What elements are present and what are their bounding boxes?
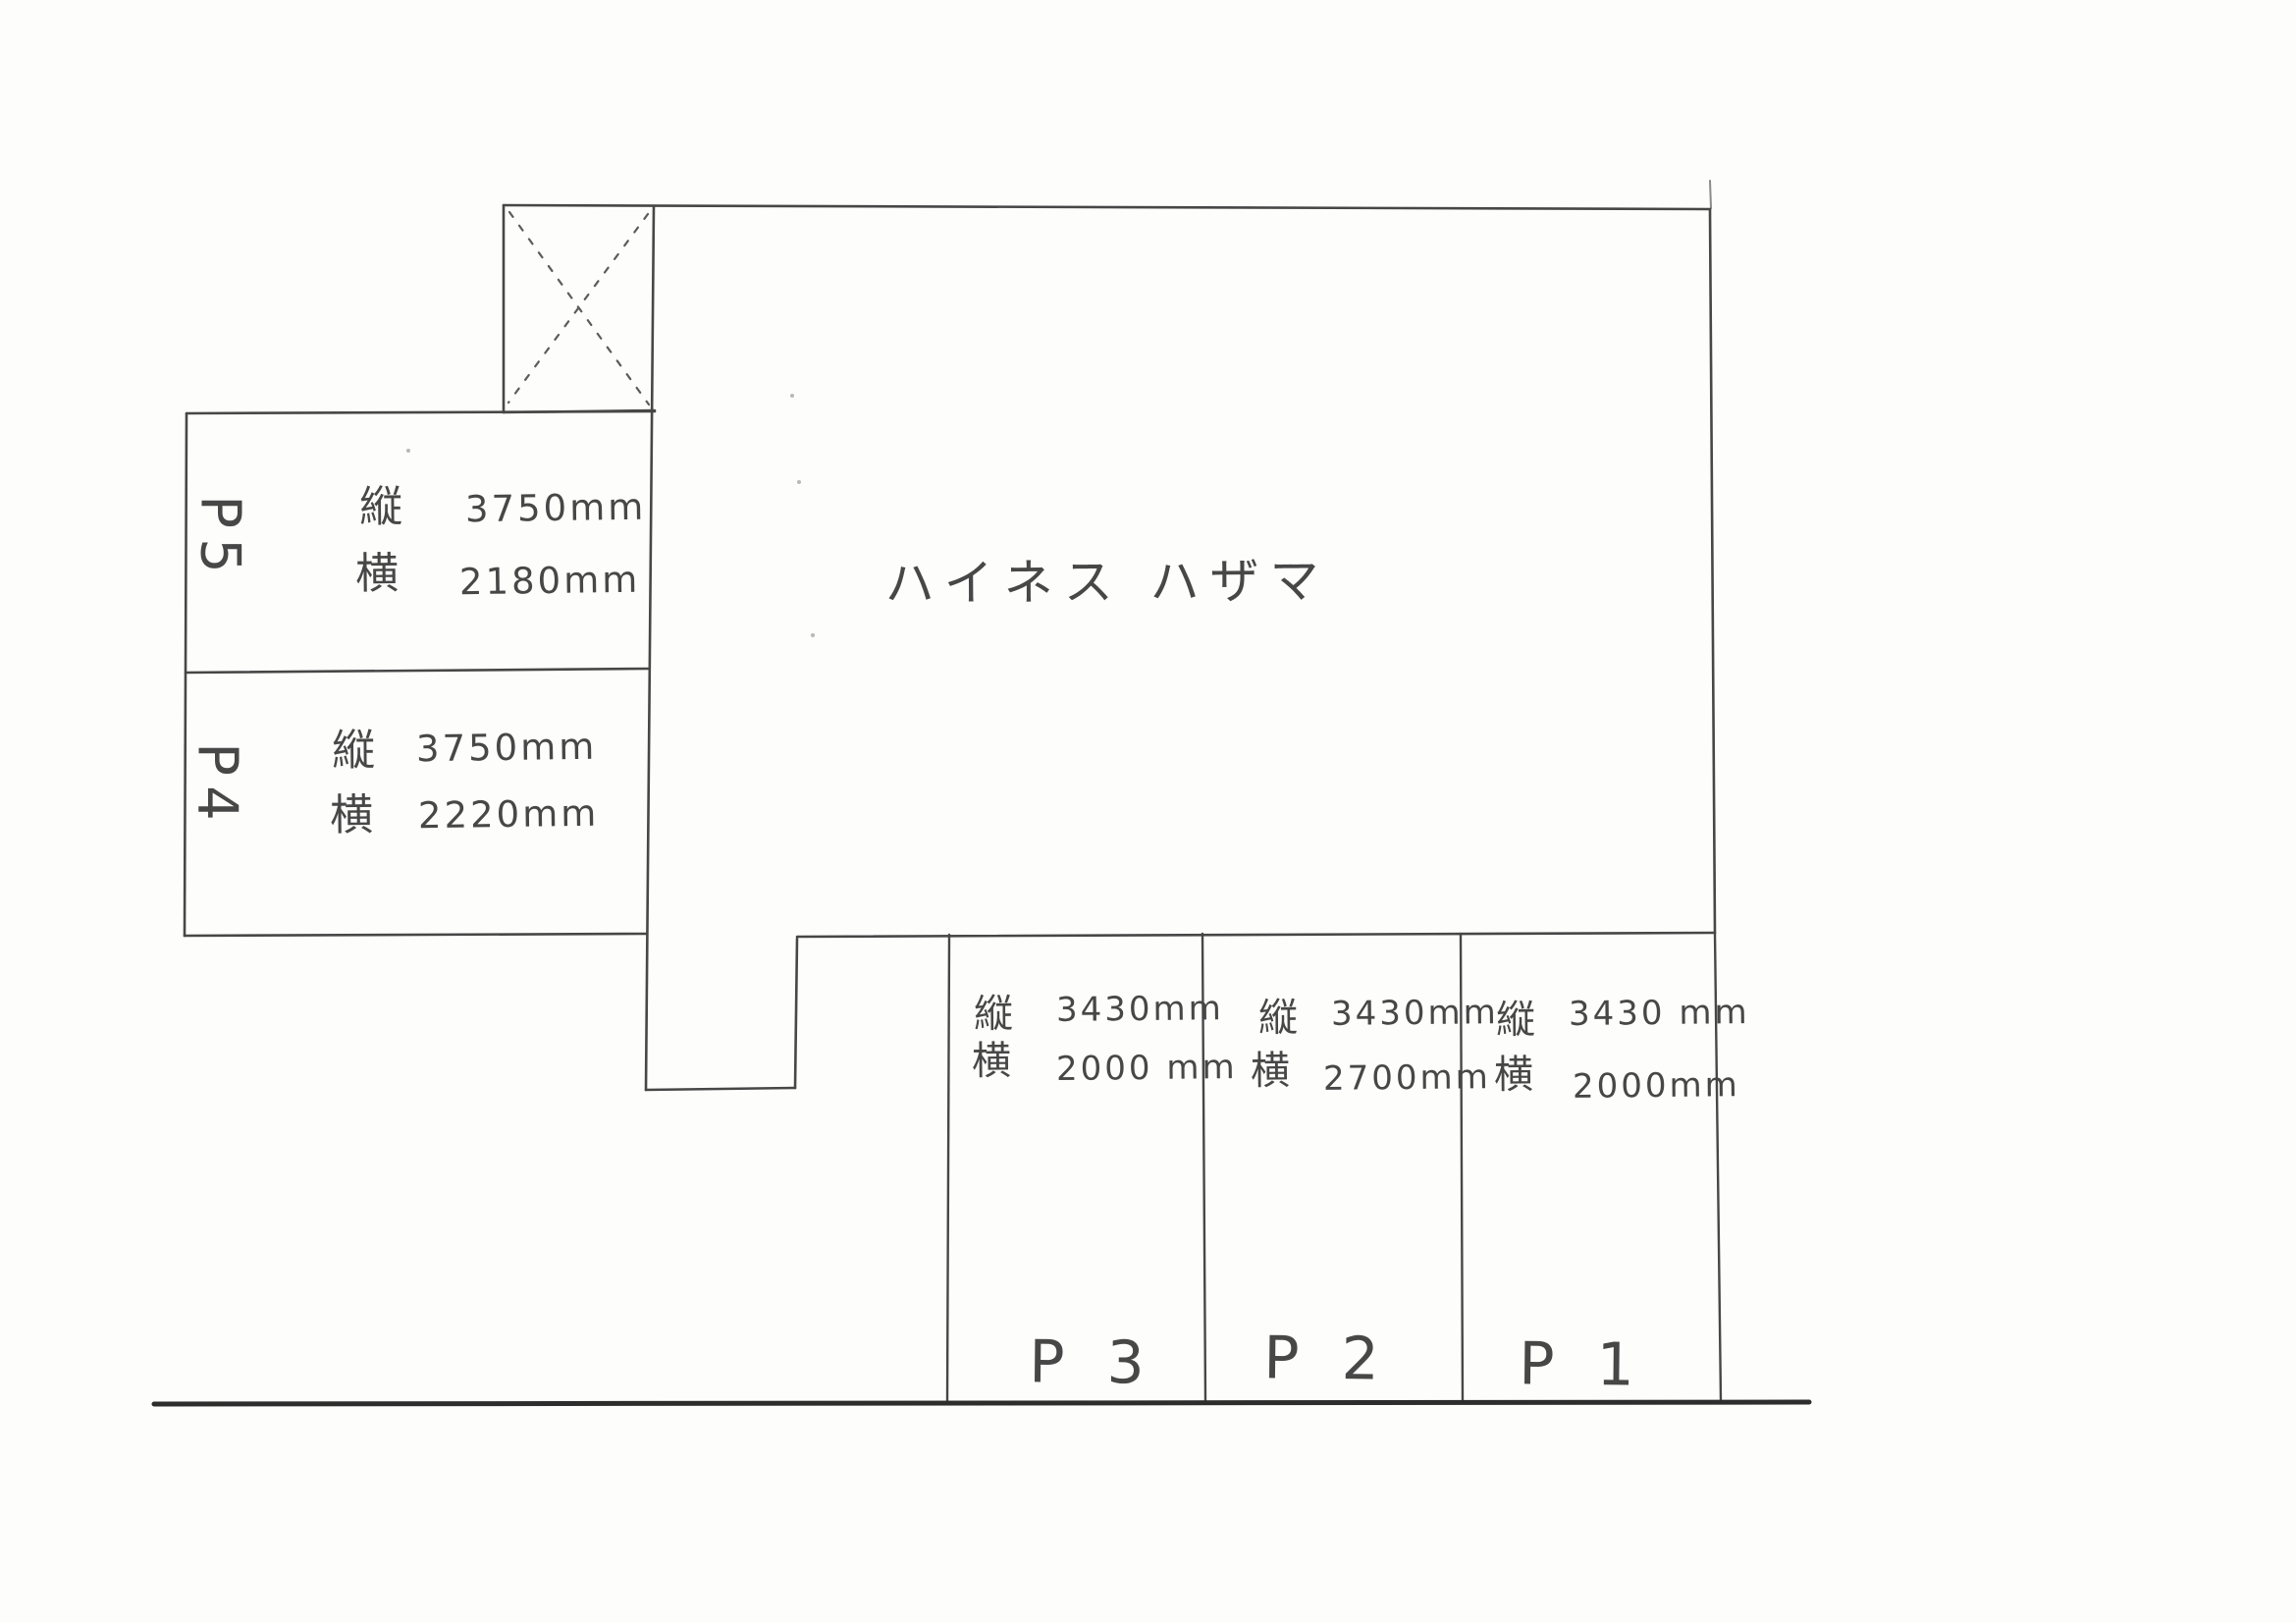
p5-tate-value: 3750mm [465,486,647,531]
building-name-label: ハイネス ハザマ [884,541,1329,615]
p4-tate-value: 3750mm [416,726,598,771]
p5-top-edge [187,411,655,413]
p4-bottom-edge [185,934,647,936]
p2-tate-key: 縦 [1258,986,1301,1043]
p5-yoko-value: 2180mm [459,559,641,604]
building-right-edge [1710,209,1715,933]
p2-yoko-key: 横 [1251,1039,1293,1096]
building-top-edge [504,205,1710,209]
p4-yoko-key: 横 [330,780,376,842]
stall-label-p1: P 1 [1519,1329,1646,1399]
p2-yoko-value: 2700mm [1323,1057,1491,1099]
p1-yoko-value: 2000mm [1573,1065,1740,1107]
parking-plan-sheet: ハイネス ハザマ P5 縦 3750mm 横 2180mm P4 縦 3750m… [0,0,2296,1623]
p1-tate-value: 3430 mm [1569,993,1750,1034]
stall-label-p4: P4 [186,742,249,830]
paper-speck [406,449,410,453]
p5-yoko-key: 横 [355,538,401,601]
p1-yoko-key: 横 [1494,1043,1536,1100]
p3-left-divider [947,935,949,1402]
road-line [154,1402,1809,1404]
p4-yoko-value: 2220mm [418,792,600,838]
p5-p4-left-edge [185,413,187,936]
p3-tate-value: 3430mm [1056,989,1224,1030]
paper-speck [797,480,801,484]
stall-label-p5: P5 [188,495,252,582]
stall-label-p3: P 3 [1029,1327,1156,1397]
top-right-tick [1710,181,1711,208]
p5-p4-divider [186,669,648,673]
p5-tate-key: 縦 [359,471,405,534]
building-left-edge [646,206,654,1090]
paper-speck [790,394,794,398]
paper-speck [811,633,815,637]
hatched-area-diagonals [508,212,649,405]
stall-label-p2: P 2 [1263,1324,1391,1393]
p4-tate-key: 縦 [332,715,378,778]
building-protrusion [646,939,797,1090]
p2-tate-value: 3430mm [1331,993,1499,1034]
building-bottom-edge [797,933,1715,937]
p3-yoko-value: 2000 mm [1056,1048,1238,1089]
p3-yoko-key: 横 [972,1029,1014,1086]
p1-tate-key: 縦 [1496,988,1538,1045]
